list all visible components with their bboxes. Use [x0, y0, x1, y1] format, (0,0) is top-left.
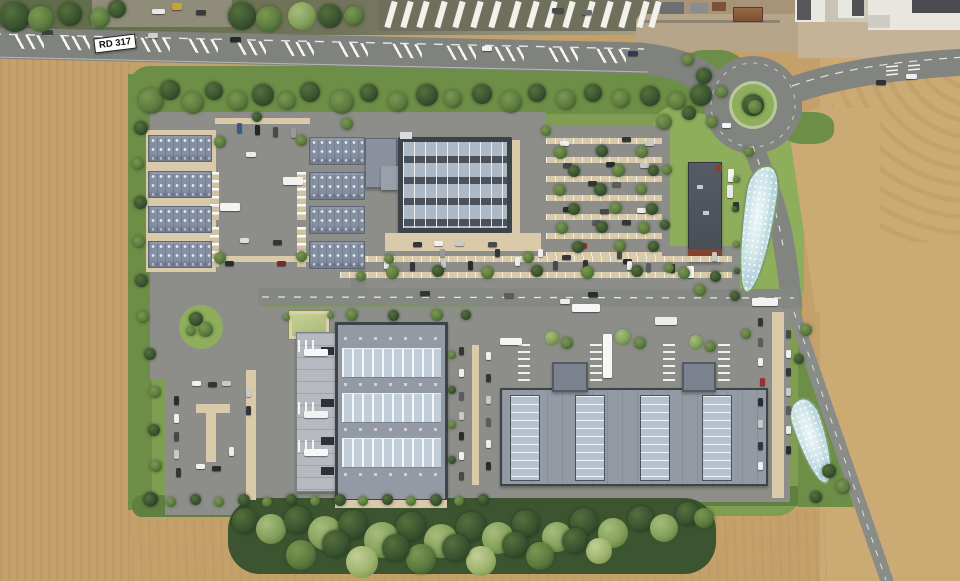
tree — [310, 496, 320, 506]
vehicle — [246, 152, 256, 157]
road-east — [788, 62, 960, 92]
tree — [327, 312, 334, 319]
paved-apron — [472, 345, 479, 485]
tree — [132, 158, 144, 170]
vehicle — [504, 293, 514, 298]
tree — [134, 196, 147, 209]
tree — [384, 254, 394, 264]
vehicle — [786, 426, 791, 434]
vehicle — [758, 398, 763, 406]
roof-glazing-strip — [640, 395, 670, 481]
tree — [286, 494, 297, 505]
warehouse-east — [500, 388, 768, 486]
vehicle — [174, 432, 179, 441]
vehicle — [758, 358, 763, 366]
vehicle — [220, 203, 240, 211]
tree — [596, 221, 608, 233]
vehicle — [277, 261, 286, 266]
hq-building — [398, 137, 512, 233]
tree — [108, 0, 126, 18]
vehicle — [622, 137, 631, 142]
vehicle — [459, 412, 464, 420]
tree — [238, 494, 250, 506]
tree — [631, 265, 643, 277]
vehicle — [459, 452, 464, 460]
vehicle — [645, 141, 654, 146]
tree — [356, 271, 366, 281]
tree — [732, 206, 738, 212]
tree — [448, 386, 456, 394]
dock-door — [321, 399, 334, 407]
industrial-unit — [309, 137, 365, 165]
roof-glazing-band — [342, 438, 441, 468]
tree — [682, 106, 696, 120]
vehicle — [172, 3, 182, 10]
parking-row — [546, 176, 662, 182]
tree — [648, 241, 659, 252]
tree — [90, 8, 110, 28]
tree — [523, 252, 534, 263]
tree — [526, 542, 554, 570]
tree — [810, 491, 822, 503]
vehicle — [552, 8, 564, 13]
vehicle — [876, 80, 886, 85]
tree — [614, 240, 626, 252]
brick-corner — [716, 165, 722, 171]
dock-door — [321, 467, 334, 475]
roof-glazing-strip — [510, 395, 540, 481]
vehicle — [786, 406, 791, 414]
vehicle — [304, 449, 328, 456]
vehicle — [273, 240, 282, 245]
tree — [214, 497, 224, 507]
roof-glazing-strip — [575, 395, 605, 481]
road-name-label: RD 317 — [98, 36, 131, 51]
vehicle — [246, 406, 251, 415]
industrial-unit — [309, 206, 365, 234]
tree — [572, 241, 584, 253]
vehicle — [291, 128, 296, 138]
paved-apron — [215, 118, 310, 124]
vehicle — [225, 261, 234, 266]
aerial-masterplan-render: RD 317 — [0, 0, 960, 581]
tree — [556, 222, 568, 234]
tree — [360, 84, 378, 102]
vehicle — [152, 9, 165, 14]
tree — [448, 456, 456, 464]
tree — [568, 203, 580, 215]
vehicle — [304, 349, 328, 356]
roof-glazing-strip — [702, 395, 732, 481]
tree — [466, 546, 496, 576]
vehicle — [722, 123, 731, 128]
tree — [448, 351, 456, 359]
tree — [330, 90, 354, 114]
vehicle — [440, 249, 445, 257]
tree — [252, 112, 262, 122]
tree — [166, 497, 176, 507]
tree — [694, 508, 714, 528]
tree — [615, 329, 631, 345]
vehicle — [560, 299, 570, 304]
vehicle — [758, 318, 763, 326]
dock-chevron-marking — [663, 344, 675, 384]
tree — [431, 309, 443, 321]
tree — [638, 222, 650, 234]
vehicle — [459, 472, 464, 480]
paved-apron — [206, 412, 216, 462]
tree — [561, 337, 573, 349]
tree — [836, 480, 850, 494]
road-hatch-marking — [140, 38, 170, 53]
road-hatch-marking — [338, 43, 368, 58]
tree — [741, 329, 751, 339]
tree — [733, 241, 740, 248]
tree — [678, 267, 690, 279]
dock-chevron-marking — [518, 344, 530, 384]
tree — [0, 2, 30, 32]
vehicle — [758, 442, 763, 450]
tree — [341, 118, 353, 130]
vehicle — [196, 464, 205, 469]
vehicle — [237, 123, 242, 133]
vehicle — [174, 414, 179, 423]
tree — [730, 291, 740, 301]
vehicle — [906, 74, 917, 79]
road-hatch-marking — [596, 49, 626, 64]
tree — [134, 121, 148, 135]
tree — [660, 220, 670, 230]
road-hatch-marking — [494, 46, 524, 61]
tree — [232, 508, 258, 534]
industrial-unit — [148, 241, 212, 268]
tree — [716, 86, 728, 98]
tree — [256, 514, 286, 544]
dock-pod — [552, 362, 588, 392]
tree — [382, 494, 393, 505]
vehicle — [538, 249, 543, 257]
road-hatch-marking — [284, 41, 314, 56]
parking-row — [546, 195, 662, 201]
vehicle — [208, 382, 217, 387]
tree — [794, 354, 804, 364]
vehicle — [752, 298, 778, 306]
tree — [186, 326, 196, 336]
tree — [610, 202, 622, 214]
rooftop-unit — [703, 211, 709, 215]
vehicle — [646, 263, 651, 272]
vehicle — [495, 249, 500, 257]
tree — [406, 496, 416, 506]
tree — [500, 91, 522, 113]
tree — [694, 284, 706, 296]
vehicle — [240, 238, 249, 243]
vehicle — [760, 378, 765, 386]
vehicle — [758, 462, 763, 470]
vehicle — [273, 127, 278, 137]
tree — [300, 82, 320, 102]
vehicle — [283, 177, 303, 185]
vehicle — [588, 292, 598, 297]
road-hatch-marking — [548, 48, 578, 63]
hq-west-wing — [381, 166, 399, 190]
vehicle — [786, 388, 791, 396]
tree — [648, 165, 659, 176]
rooftop-unit — [400, 132, 412, 139]
tree — [689, 335, 703, 349]
tree — [528, 84, 546, 102]
tree — [198, 322, 213, 337]
paved-apron — [772, 312, 784, 498]
tree — [346, 546, 378, 578]
roof-vents — [344, 473, 439, 476]
vehicle — [410, 262, 415, 271]
dock-door — [321, 437, 334, 445]
tree — [531, 265, 543, 277]
road-hatch-marking — [60, 36, 90, 51]
vehicle — [486, 374, 491, 382]
vehicle — [553, 261, 558, 270]
vehicle — [655, 317, 677, 325]
vehicle — [488, 242, 497, 247]
tree — [262, 497, 272, 507]
tree — [744, 147, 754, 157]
vehicle — [459, 392, 464, 400]
vehicle — [212, 466, 221, 471]
vehicle — [255, 125, 260, 135]
tree — [278, 92, 296, 110]
tree — [416, 84, 438, 106]
vehicle — [148, 33, 158, 38]
vehicle — [786, 350, 791, 358]
tree — [149, 386, 161, 398]
vehicle — [486, 418, 491, 426]
industrial-unit — [148, 171, 212, 198]
tree — [144, 494, 156, 506]
tree — [664, 263, 674, 273]
tree — [733, 176, 740, 183]
tree — [650, 514, 678, 542]
road-hatch-marking — [446, 45, 476, 60]
vehicle — [786, 330, 791, 338]
tree — [442, 534, 470, 562]
tree — [228, 91, 248, 111]
vehicle — [486, 396, 491, 404]
tree — [288, 2, 316, 30]
tree — [554, 146, 567, 159]
roof-glazing-band — [342, 393, 441, 423]
vehicle — [486, 440, 491, 448]
industrial-unit — [309, 241, 365, 269]
vehicle — [727, 185, 733, 198]
tree — [444, 90, 462, 108]
tree — [214, 136, 226, 148]
tree — [144, 348, 156, 360]
tree — [682, 54, 694, 66]
parking-row — [546, 214, 662, 220]
vehicle — [174, 450, 179, 459]
vehicle — [192, 381, 201, 386]
tree — [594, 183, 607, 196]
tree — [454, 496, 464, 506]
vehicle — [455, 241, 464, 246]
tree — [705, 341, 716, 352]
vehicle — [786, 368, 791, 376]
tree — [461, 310, 471, 320]
tree — [800, 324, 812, 336]
tree — [432, 265, 444, 277]
tree — [388, 92, 408, 112]
paved-apron — [512, 140, 520, 233]
tree — [634, 337, 646, 349]
road-hatch-marking — [14, 35, 44, 50]
industrial-unit — [309, 172, 365, 200]
road-hatch-marking — [188, 39, 218, 54]
road-hatch-marking — [236, 40, 266, 55]
tree — [690, 84, 712, 106]
tree — [612, 90, 630, 108]
vehicle — [600, 209, 609, 214]
tree — [150, 460, 162, 472]
tree — [28, 6, 54, 32]
tree — [344, 6, 364, 26]
vehicle — [420, 291, 430, 296]
hq-roof-glazing — [403, 142, 507, 228]
rooftop-unit — [697, 185, 703, 189]
parking-row — [340, 256, 732, 262]
dock-pod — [682, 362, 716, 392]
vehicle — [582, 10, 592, 15]
vehicle — [758, 338, 763, 346]
vehicle — [230, 37, 241, 42]
tree — [586, 538, 612, 564]
tree — [554, 184, 566, 196]
tree — [636, 184, 647, 195]
roof-vents — [344, 337, 439, 340]
tree — [636, 146, 648, 158]
tree — [346, 309, 358, 321]
tree — [190, 494, 201, 505]
vehicle — [459, 369, 464, 377]
tree — [545, 331, 559, 345]
tree — [640, 86, 660, 106]
tree — [646, 203, 658, 215]
dock-chevron-marking — [718, 344, 730, 384]
tree — [596, 145, 608, 157]
tree — [562, 528, 588, 554]
tree — [135, 274, 148, 287]
vehicle — [229, 447, 234, 456]
tree — [386, 266, 399, 279]
tree — [133, 236, 145, 248]
tree — [205, 82, 223, 100]
tree — [286, 540, 316, 570]
tree — [448, 421, 456, 429]
vehicle — [572, 304, 600, 312]
tree — [568, 165, 580, 177]
tree — [382, 534, 410, 562]
tree — [612, 164, 625, 177]
office-building — [688, 162, 722, 262]
tree — [734, 268, 740, 274]
vehicle — [246, 388, 251, 397]
vehicle — [622, 220, 631, 225]
dock-chevron-marking — [590, 344, 602, 384]
vehicle — [482, 46, 492, 51]
warehouse-west — [335, 322, 448, 502]
vehicle — [712, 252, 717, 261]
tree — [502, 532, 528, 558]
vehicle — [628, 51, 638, 56]
vehicle — [434, 241, 443, 246]
tree — [182, 92, 204, 114]
tree — [358, 496, 368, 506]
tree — [283, 314, 290, 321]
vehicle — [786, 446, 791, 454]
tree — [710, 271, 721, 282]
tree — [296, 135, 307, 146]
tree — [318, 4, 342, 28]
vehicle — [500, 338, 522, 345]
tree — [706, 116, 718, 128]
road-hatch-marking — [392, 44, 422, 59]
vehicle — [603, 334, 612, 378]
vehicle — [304, 411, 328, 418]
vehicle — [758, 420, 763, 428]
tree — [296, 251, 307, 262]
roof-vents — [344, 383, 439, 386]
tree — [214, 252, 226, 264]
tree — [252, 84, 274, 106]
vehicle — [459, 432, 464, 440]
tree — [334, 494, 346, 506]
tree — [148, 424, 160, 436]
vehicle — [176, 468, 181, 477]
tree — [58, 2, 82, 26]
vehicle — [174, 396, 179, 405]
tree — [478, 494, 489, 505]
vehicle — [486, 462, 491, 470]
tree — [584, 84, 602, 102]
tree — [662, 165, 672, 175]
tree — [160, 80, 180, 100]
tree — [822, 464, 836, 478]
vehicle — [459, 347, 464, 355]
tree — [656, 114, 672, 130]
vehicle — [413, 242, 422, 247]
tree — [256, 6, 282, 32]
vehicle — [637, 208, 646, 213]
tree — [388, 310, 399, 321]
tree — [472, 84, 492, 104]
vehicle — [196, 10, 206, 15]
tree — [481, 266, 494, 279]
tree — [228, 2, 256, 30]
tree — [581, 266, 594, 279]
tree — [406, 544, 436, 574]
vehicle — [612, 182, 621, 187]
tree — [137, 311, 149, 323]
tree — [696, 68, 712, 84]
tree — [322, 530, 350, 558]
tree — [541, 126, 551, 136]
vehicle — [468, 261, 473, 270]
tree — [748, 100, 762, 114]
vehicle — [562, 255, 571, 260]
roof-glazing-band — [342, 348, 441, 378]
tree — [556, 90, 576, 110]
vehicle — [222, 381, 231, 386]
